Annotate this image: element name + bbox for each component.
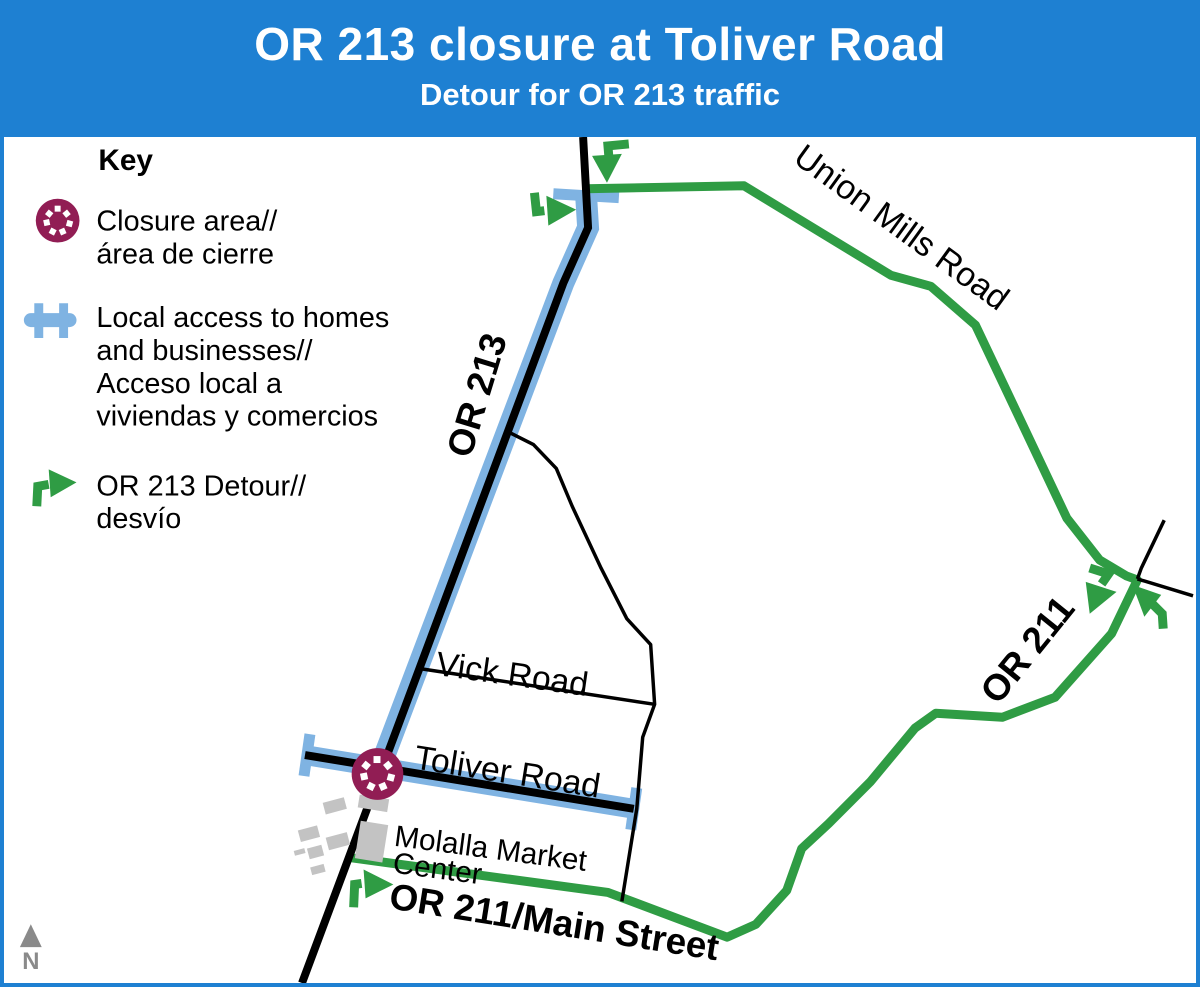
junction-road-north bbox=[1137, 520, 1164, 579]
header-banner: OR 213 closure at Toliver Road Detour fo… bbox=[4, 4, 1196, 137]
union-mills-road-label: Union Mills Road bbox=[787, 137, 1016, 318]
local-access-line-1: Local access to homes bbox=[96, 302, 389, 334]
local-access-line-4: viviendas y comercios bbox=[96, 401, 378, 433]
building bbox=[326, 832, 350, 850]
detour-arrow-icon bbox=[1086, 568, 1117, 614]
north-label: N bbox=[22, 948, 39, 975]
map-canvas: OR 213 Union Mills Road OR 211 Vick Road… bbox=[4, 137, 1196, 983]
building bbox=[294, 848, 306, 856]
building bbox=[298, 825, 320, 842]
closure-label-en: Closure area// bbox=[96, 206, 278, 238]
building bbox=[307, 845, 324, 859]
page-subtitle: Detour for OR 213 traffic bbox=[4, 67, 1196, 110]
north-arrow-icon: N bbox=[20, 924, 42, 975]
map-key: Key Closure area// área de cierre bbox=[31, 144, 390, 535]
local-access-highlights bbox=[304, 194, 637, 830]
key-title: Key bbox=[98, 144, 153, 177]
page-title: OR 213 closure at Toliver Road bbox=[4, 4, 1196, 67]
building bbox=[355, 821, 388, 863]
closure-area-icon bbox=[352, 748, 404, 800]
detour-label-es: desvío bbox=[96, 503, 181, 535]
vick-road-label: Vick Road bbox=[434, 645, 591, 704]
closure-area-icon bbox=[36, 199, 80, 243]
closure-label-es: área de cierre bbox=[96, 238, 274, 270]
or211-label: OR 211 bbox=[972, 588, 1082, 711]
detour-arrow-icon bbox=[592, 144, 629, 183]
local-access-road-icon bbox=[31, 303, 70, 338]
detour-map: OR 213 closure at Toliver Road Detour fo… bbox=[0, 0, 1200, 987]
building bbox=[310, 864, 325, 875]
building bbox=[323, 797, 347, 814]
detour-label-en: OR 213 Detour// bbox=[96, 470, 307, 502]
detour-arrow-icon bbox=[354, 870, 394, 908]
local-access-line-2: and businesses// bbox=[96, 335, 313, 367]
local-access-line-3: Acceso local a bbox=[96, 368, 283, 400]
detour-arrow-icon bbox=[1132, 585, 1163, 629]
detour-arrow-icon bbox=[37, 469, 77, 506]
